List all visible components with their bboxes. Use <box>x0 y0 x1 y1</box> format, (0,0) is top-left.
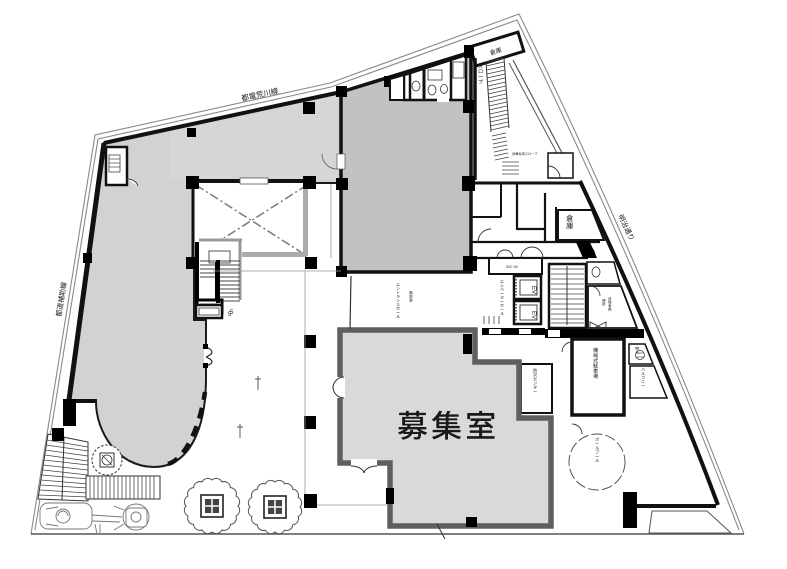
svg-text:EV: EV <box>530 311 536 319</box>
svg-text:EV: EV <box>530 286 536 294</box>
svg-text:WC·W: WC·W <box>506 264 518 269</box>
